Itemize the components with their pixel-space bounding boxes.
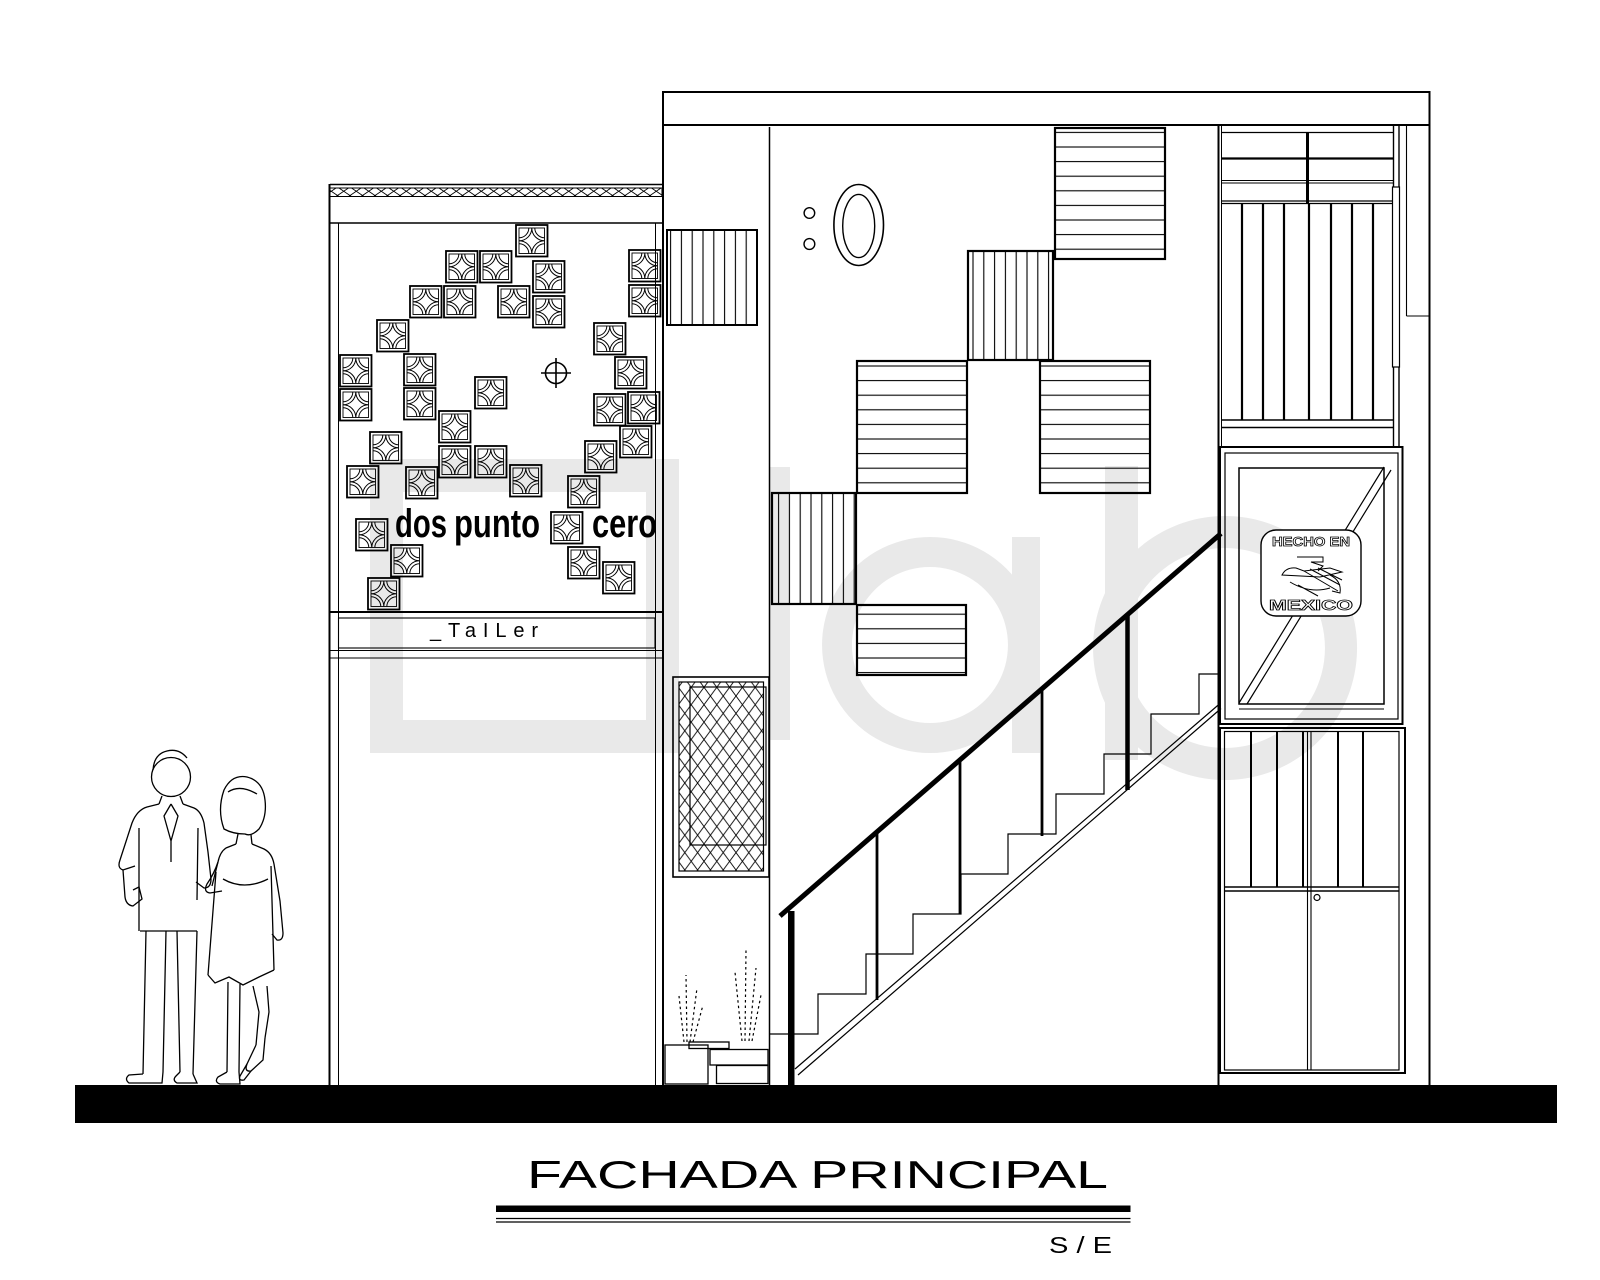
svg-text:HECHO EN: HECHO EN — [1272, 534, 1350, 549]
svg-text:punto: punto — [454, 502, 540, 546]
svg-text:cero: cero — [592, 502, 657, 546]
svg-text:MEXICO: MEXICO — [1269, 598, 1353, 614]
svg-text:S / E: S / E — [1049, 1232, 1112, 1258]
svg-text:FACHADA PRINCIPAL: FACHADA PRINCIPAL — [527, 1154, 1108, 1197]
svg-text:dos: dos — [395, 502, 447, 546]
svg-text:_TaILer: _TaILer — [429, 620, 543, 642]
